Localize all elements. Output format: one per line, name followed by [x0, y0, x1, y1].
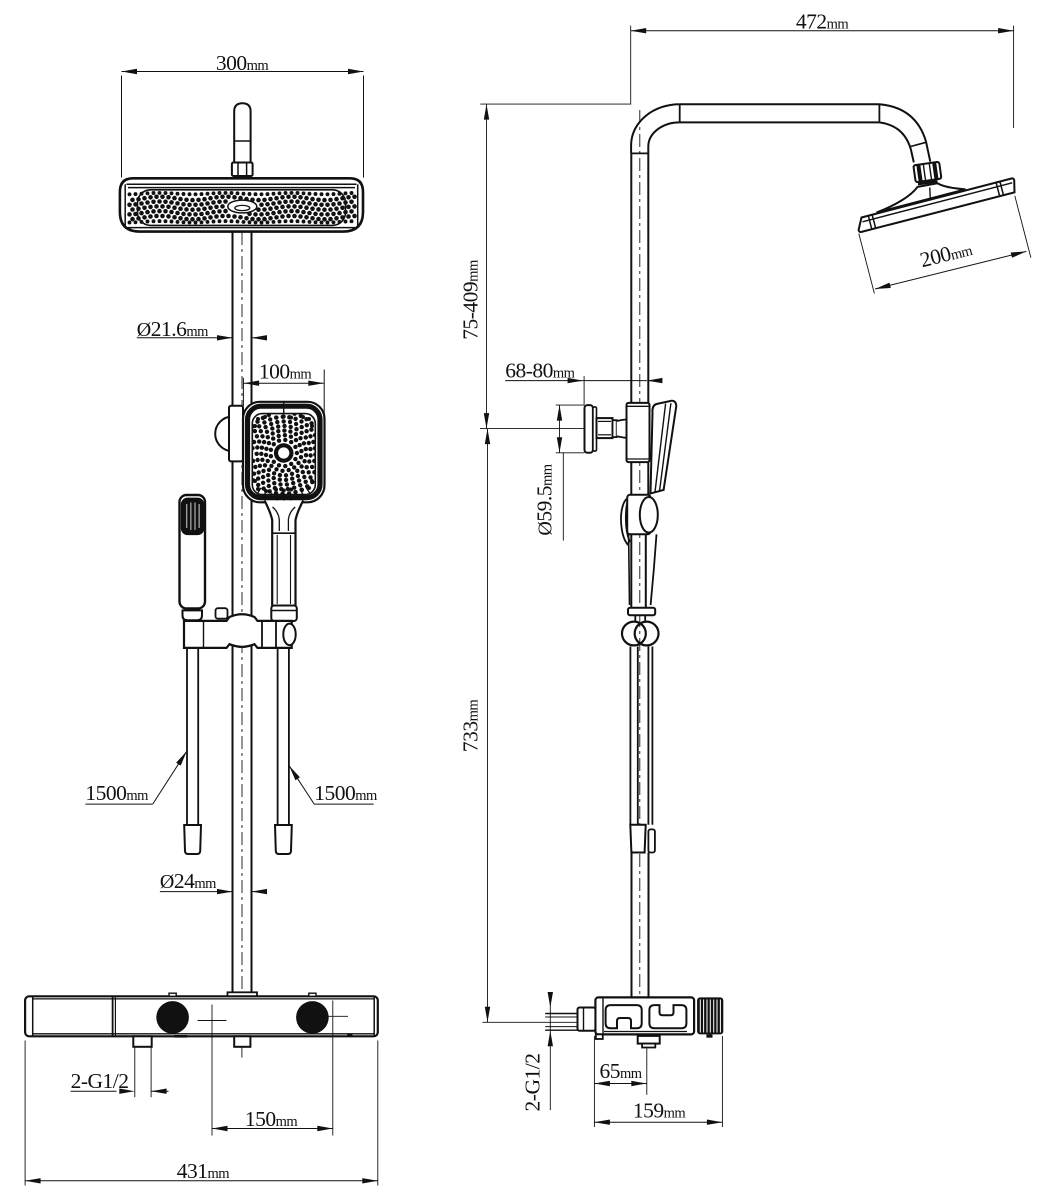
svg-text:75-409mm: 75-409mm: [459, 259, 483, 340]
svg-text:1500mm: 1500mm: [85, 781, 149, 805]
svg-text:733mm: 733mm: [459, 699, 483, 753]
svg-text:Ø59.5mm: Ø59.5mm: [533, 463, 557, 535]
svg-text:2-G1/2: 2-G1/2: [521, 1054, 545, 1112]
svg-text:100mm: 100mm: [259, 360, 313, 384]
svg-text:150mm: 150mm: [245, 1107, 299, 1131]
svg-text:431mm: 431mm: [177, 1159, 231, 1183]
svg-text:68-80mm: 68-80mm: [505, 359, 575, 383]
svg-text:472mm: 472mm: [796, 10, 850, 34]
svg-text:Ø24mm: Ø24mm: [160, 869, 217, 893]
svg-text:159mm: 159mm: [633, 1099, 687, 1123]
svg-text:65mm: 65mm: [599, 1059, 642, 1083]
svg-text:1500mm: 1500mm: [314, 781, 378, 805]
